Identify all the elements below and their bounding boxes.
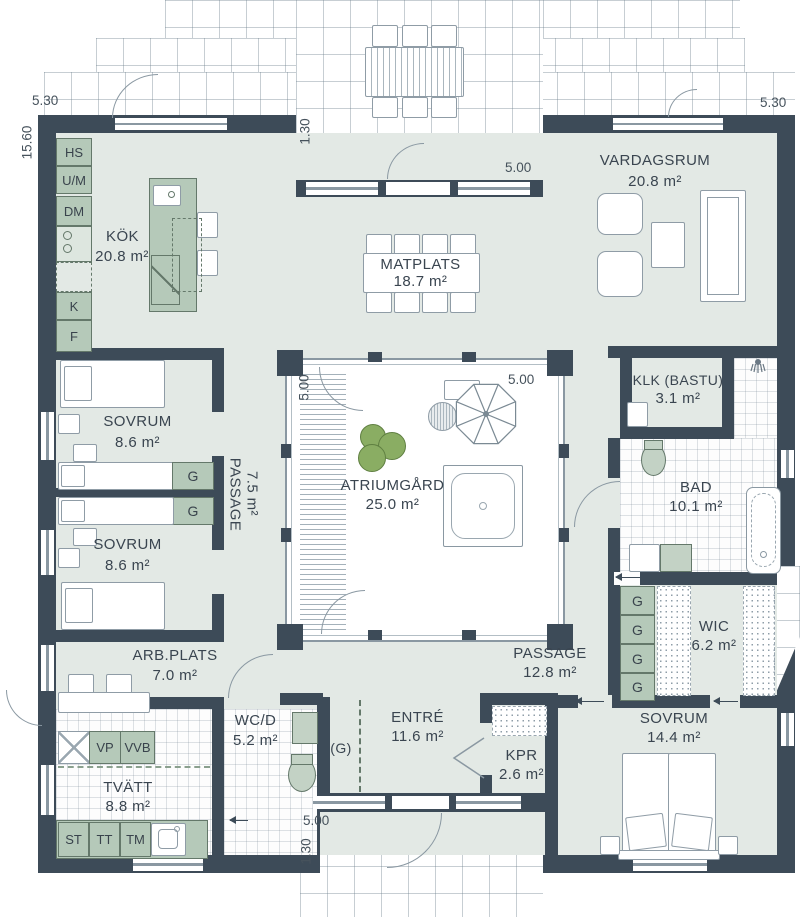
pillow xyxy=(65,588,93,623)
floor-drain-box xyxy=(58,731,90,764)
window-mullion xyxy=(378,182,386,195)
door-gap-sovrum2 xyxy=(212,550,224,594)
atrium-mullion xyxy=(281,528,291,542)
sofa-seat xyxy=(707,197,739,295)
room-area-bad: 10.1 m² xyxy=(646,498,746,515)
room-area-passage1: 7.5 m² xyxy=(244,454,261,534)
kpr-shelf xyxy=(492,706,547,736)
room-area-kpr: 2.6 m² xyxy=(489,766,554,783)
dining-chair xyxy=(366,234,392,255)
room-label-tvatt: TVÄTT xyxy=(83,779,173,796)
room-area-sovrum1: 8.6 m² xyxy=(90,434,185,451)
window xyxy=(41,530,54,575)
laundry-st: ST xyxy=(58,822,89,857)
floor-plan: HS U/M DM K F G G VP xyxy=(0,0,800,917)
dining-chair xyxy=(394,234,420,255)
window xyxy=(41,765,54,815)
cabinet-um: U/M xyxy=(56,166,92,194)
heatpump-vp: VP xyxy=(89,731,121,764)
laundry-tt: TT xyxy=(89,822,120,857)
outdoor-chair xyxy=(402,25,428,47)
headboard xyxy=(618,850,720,860)
wall-klk-bottom xyxy=(620,427,734,439)
door-arc xyxy=(6,690,42,726)
dim-recess-depth: 1.30 xyxy=(298,107,313,157)
wardrobe-box: G xyxy=(620,615,655,644)
cabinet-dm: DM xyxy=(56,196,92,226)
entre-wardrobe-label: (G) xyxy=(324,740,358,756)
nightstand xyxy=(58,548,80,568)
bathtub-drain xyxy=(760,551,767,558)
room-area-wcd: 5.2 m² xyxy=(223,732,288,749)
room-area-passage2: 12.8 m² xyxy=(500,664,600,681)
outdoor-chair xyxy=(431,25,457,47)
pillow xyxy=(625,813,667,851)
wall-kpr-left-upper xyxy=(480,705,492,723)
wall-kpr-top xyxy=(480,693,558,705)
wardrobe-box: G xyxy=(620,673,655,701)
room-label-sovrum3: SOVRUM xyxy=(624,710,724,727)
pillow xyxy=(61,500,85,522)
room-label-passage2: PASSAGE xyxy=(500,645,600,662)
window-mullion xyxy=(450,182,458,195)
dining-chair xyxy=(450,234,476,255)
atrium-mullion xyxy=(281,444,291,458)
atrium-mullion xyxy=(462,352,476,362)
dining-chair xyxy=(422,292,448,313)
outdoor-chair xyxy=(372,97,398,118)
room-area-klk: 3.1 m² xyxy=(628,390,728,407)
window xyxy=(115,118,227,130)
dining-chair xyxy=(450,292,476,313)
toilet-tank xyxy=(644,440,663,450)
dim-atrium-left: 5.00 xyxy=(297,363,312,413)
sink-basin-icon xyxy=(63,244,72,253)
window-mullion xyxy=(449,796,456,809)
outdoor-chair xyxy=(431,97,457,118)
window xyxy=(306,182,378,195)
laundry-sink-dot xyxy=(174,826,180,832)
pillow xyxy=(61,465,85,487)
bathroom-sink xyxy=(629,544,660,572)
sliding-door-arrow-icon xyxy=(714,701,738,702)
outdoor-chair xyxy=(372,25,398,47)
window xyxy=(458,182,530,195)
window xyxy=(781,713,794,746)
room-area-sovrum2: 8.6 m² xyxy=(80,557,175,574)
room-label-bad: BAD xyxy=(646,479,746,496)
nightstand xyxy=(58,414,80,434)
dining-chair xyxy=(366,292,392,313)
wardrobe-box: G xyxy=(172,462,214,490)
room-label-kpr: KPR xyxy=(489,747,554,764)
window xyxy=(781,450,794,478)
desk xyxy=(58,692,150,713)
room-label-wcd: WC/D xyxy=(223,712,288,729)
room-label-sovrum1: SOVRUM xyxy=(90,413,185,430)
room-area-arbplats: 7.0 m² xyxy=(120,667,230,684)
waterheater-vvb: VVB xyxy=(120,731,155,764)
cabinet-k: K xyxy=(56,292,92,320)
nightstand xyxy=(718,836,738,855)
armchair xyxy=(597,251,643,297)
wardrobe-box: G xyxy=(620,586,655,615)
front-door xyxy=(387,796,451,809)
island-sink-icon xyxy=(153,185,181,206)
laundry-sink-basin xyxy=(158,829,178,849)
cabinet-tall xyxy=(56,262,92,292)
wall-entre-top-left xyxy=(280,693,323,705)
room-label-matplats: MATPLATS xyxy=(372,256,469,273)
laundry-tm: TM xyxy=(120,822,151,857)
window xyxy=(41,645,54,691)
window xyxy=(453,796,521,809)
dim-porch-depth: 1.30 xyxy=(299,827,314,877)
outdoor-table xyxy=(365,47,464,97)
atrium-mullion xyxy=(368,630,382,640)
window xyxy=(313,796,385,809)
room-area-wic: 6.2 m² xyxy=(664,637,764,654)
pillow xyxy=(671,813,713,851)
dim-top-left: 5.30 xyxy=(32,93,58,108)
door-gap-sovrum1 xyxy=(212,412,224,456)
cabinet-f: F xyxy=(56,320,92,352)
terrace-door xyxy=(386,182,452,195)
sliding-door-arrow-icon xyxy=(616,577,640,578)
room-area-vardagsrum: 20.8 m² xyxy=(580,173,730,190)
atrium-post-tr xyxy=(547,350,573,376)
room-label-passage1: PASSAGE xyxy=(227,435,244,555)
bathroom-sink-green xyxy=(660,544,692,572)
room-label-kok: KÖK xyxy=(75,228,170,245)
island-faucet-dot xyxy=(168,191,175,198)
atrium-mullion xyxy=(462,630,476,640)
room-label-sovrum2: SOVRUM xyxy=(80,536,175,553)
room-area-matplats: 18.7 m² xyxy=(372,273,469,290)
sink-basin-icon xyxy=(63,231,72,240)
wcd-sink xyxy=(292,712,318,744)
dining-chair xyxy=(394,292,420,313)
coffee-table xyxy=(651,222,685,268)
room-label-vardagsrum: VARDAGSRUM xyxy=(580,152,730,169)
dim-left-height: 15.60 xyxy=(20,118,35,168)
window-mullion xyxy=(385,796,392,809)
kpr-door-icon xyxy=(450,736,486,780)
hot-tub-drain xyxy=(479,502,487,510)
window xyxy=(133,858,203,871)
dim-atrium-right: 5.00 xyxy=(508,372,534,387)
sliding-door-arrow-icon xyxy=(230,820,248,821)
wall-arbplats-tvatt xyxy=(148,697,224,709)
room-label-atriumgard: ATRIUMGÅRD xyxy=(330,477,455,494)
bush-icon xyxy=(358,444,386,472)
room-label-klk: KLK (BASTU) xyxy=(628,372,728,388)
window xyxy=(613,118,723,130)
room-label-arbplats: ARB.PLATS xyxy=(120,647,230,664)
shower-icon xyxy=(748,356,768,376)
toilet-tank xyxy=(291,754,313,765)
room-area-sovrum3: 14.4 m² xyxy=(624,729,724,746)
room-label-entre: ENTRÉ xyxy=(380,709,455,726)
dim-recess-width: 5.00 xyxy=(505,160,531,175)
wardrobe-box: G xyxy=(172,497,214,525)
room-label-wic: WIC xyxy=(664,618,764,635)
sliding-door-arrow-icon xyxy=(576,701,604,702)
wall-passage-bad xyxy=(608,438,620,697)
room-area-entre: 11.6 m² xyxy=(380,728,455,745)
wardrobe-box: G xyxy=(620,644,655,673)
window xyxy=(41,412,54,460)
pillow xyxy=(64,366,92,401)
dim-top-right: 5.30 xyxy=(760,95,786,110)
nightstand xyxy=(600,836,620,855)
room-area-kok: 20.8 m² xyxy=(72,248,172,265)
atrium-mullion xyxy=(559,444,569,458)
room-area-atriumgard: 25.0 m² xyxy=(330,496,455,513)
cabinet-hs: HS xyxy=(56,138,92,166)
outdoor-chair xyxy=(402,97,428,118)
parasol-icon xyxy=(452,380,520,448)
bench-dashed-line xyxy=(58,766,210,768)
atrium-mullion xyxy=(559,528,569,542)
armchair xyxy=(597,193,643,235)
dining-chair xyxy=(422,234,448,255)
room-area-tvatt: 8.8 m² xyxy=(83,798,173,815)
wall-sovrum2-arbplats xyxy=(38,630,224,642)
atrium-post-bl xyxy=(277,624,303,650)
atrium-mullion xyxy=(368,352,382,362)
